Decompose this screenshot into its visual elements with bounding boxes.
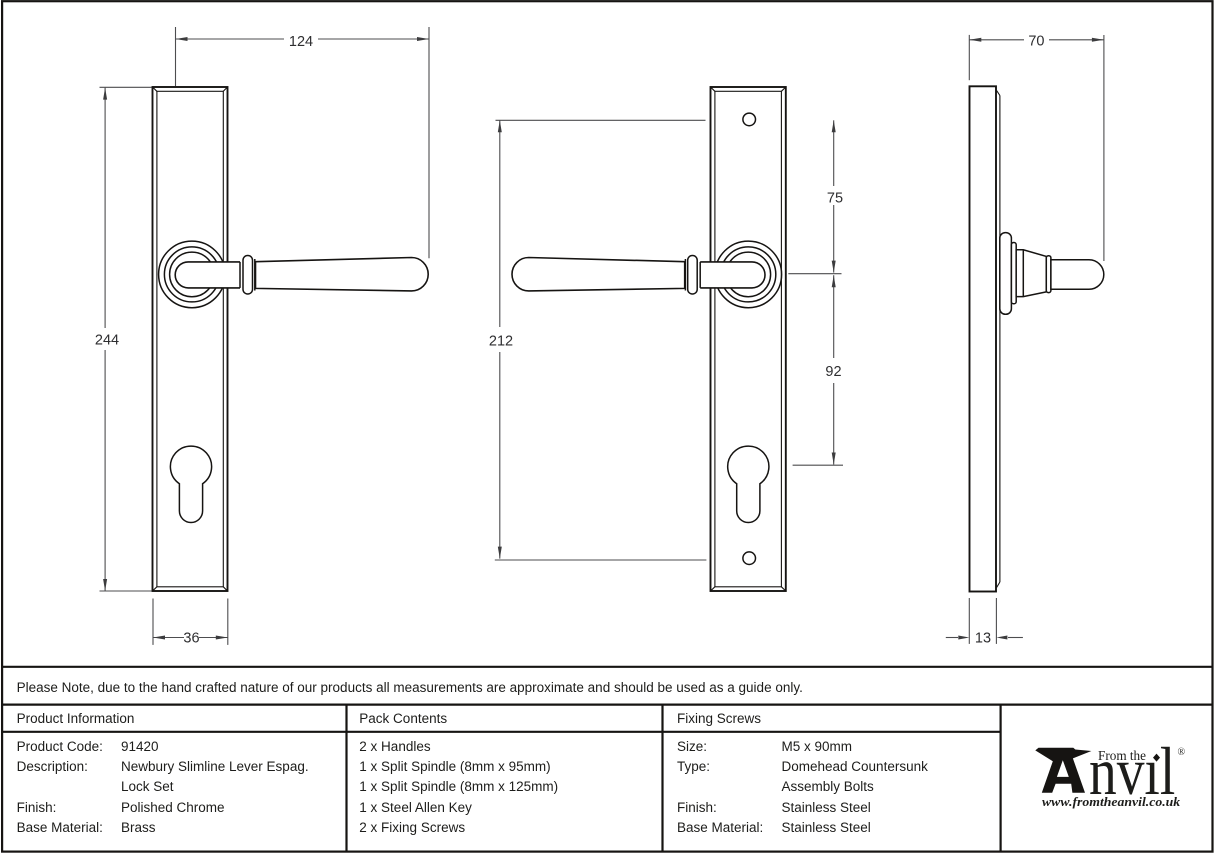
svg-text:244: 244 (95, 332, 119, 348)
svg-text:13: 13 (975, 630, 991, 646)
svg-text:212: 212 (489, 334, 513, 350)
svg-text:75: 75 (827, 191, 843, 207)
svg-text:36: 36 (183, 630, 199, 646)
svg-text:124: 124 (289, 34, 313, 50)
svg-text:92: 92 (825, 364, 841, 380)
svg-text:70: 70 (1028, 33, 1044, 49)
